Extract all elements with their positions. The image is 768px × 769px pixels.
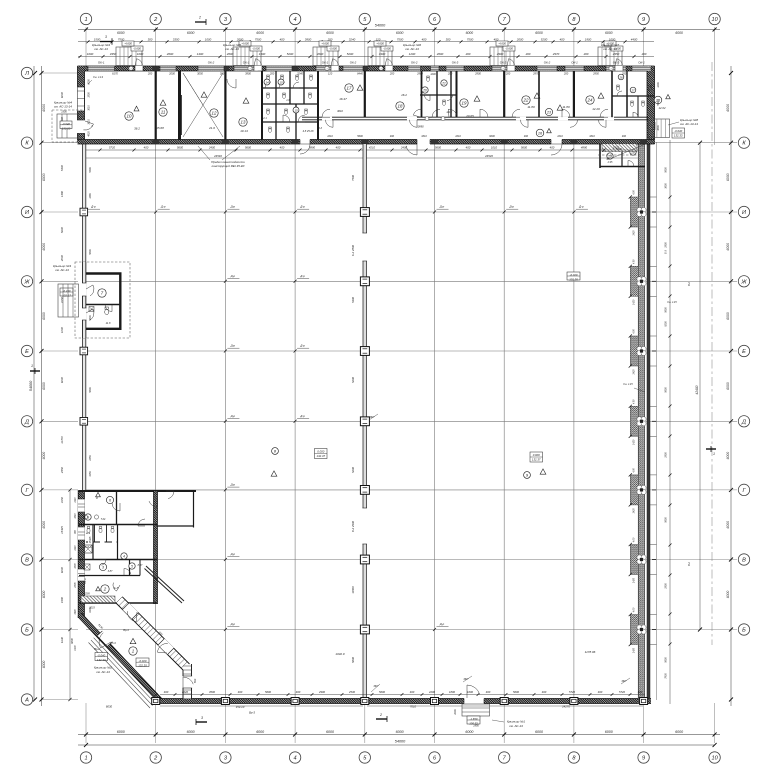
svg-text:Б-2: Б-2	[351, 251, 355, 256]
svg-text:15425: 15425	[89, 536, 92, 543]
svg-text:200: 200	[269, 72, 275, 76]
svg-text:400: 400	[486, 690, 491, 694]
svg-text:ОК-1: ОК-1	[243, 60, 250, 64]
svg-text:5600: 5600	[60, 226, 64, 233]
svg-text:2.95: 2.95	[607, 161, 613, 164]
svg-text:6000: 6000	[726, 452, 730, 460]
svg-text:1000: 1000	[60, 326, 64, 333]
svg-text:3150: 3150	[60, 496, 64, 503]
svg-text:6000: 6000	[465, 730, 473, 734]
svg-text:2450: 2450	[60, 466, 64, 474]
svg-text:4.00: 4.00	[633, 399, 636, 404]
svg-text:1990: 1990	[60, 596, 64, 603]
svg-text:ОК-1: ОК-1	[571, 60, 578, 64]
svg-text:5600: 5600	[177, 145, 184, 149]
svg-text:ОК-3: ОК-3	[452, 60, 459, 64]
svg-text:1480: 1480	[60, 190, 64, 197]
svg-text:1000: 1000	[137, 52, 144, 56]
svg-text:-0.040: -0.040	[674, 129, 682, 133]
svg-text:5: 5	[131, 565, 133, 569]
svg-text:4890: 4890	[581, 145, 588, 149]
svg-text:см. АС-13: см. АС-13	[509, 724, 523, 728]
svg-text:132.37: 132.37	[532, 458, 541, 462]
svg-text:6000: 6000	[187, 31, 195, 35]
svg-text:2000: 2000	[60, 254, 64, 262]
svg-text:1: 1	[31, 364, 33, 368]
svg-text:-4.600: -4.600	[498, 42, 506, 46]
svg-text:2900: 2900	[496, 52, 504, 56]
svg-text:2295: 2295	[83, 592, 90, 595]
svg-text:2000: 2000	[168, 72, 175, 76]
svg-text:5720: 5720	[109, 145, 116, 149]
svg-text:Сн. п.13: Сн. п.13	[93, 75, 103, 79]
svg-text:1000: 1000	[87, 52, 94, 56]
svg-text:-4.600: -4.600	[321, 42, 329, 46]
svg-text:22: 22	[523, 98, 529, 103]
svg-text:2950: 2950	[592, 72, 599, 76]
svg-text:3350: 3350	[173, 37, 180, 41]
svg-text:Д-р: Д-р	[508, 205, 514, 209]
svg-text:-0.600: -0.600	[329, 47, 337, 51]
svg-text:6000: 6000	[117, 730, 125, 734]
svg-text:Д-р: Д-р	[160, 205, 166, 209]
svg-text:1010: 1010	[88, 119, 91, 125]
svg-text:А: А	[24, 698, 29, 704]
svg-text:см. АС-13: см. АС-13	[225, 47, 239, 51]
svg-text:360°: 360°	[463, 678, 468, 681]
svg-text:10: 10	[711, 756, 718, 762]
svg-text:Вр-2: Вр-2	[94, 647, 100, 651]
svg-text:9: 9	[642, 756, 645, 762]
svg-text:5600: 5600	[357, 135, 363, 138]
svg-text:11.89: 11.89	[562, 105, 570, 109]
svg-text:10: 10	[127, 114, 132, 119]
svg-text:-4.600: -4.600	[241, 42, 249, 46]
svg-text:2900: 2900	[351, 521, 355, 528]
svg-text:ОК-2: ОК-2	[208, 60, 215, 64]
svg-text:2990: 2990	[318, 690, 325, 694]
svg-text:см. АС-13: см. АС-13	[405, 47, 419, 51]
svg-text:5200: 5200	[351, 377, 355, 383]
svg-text:4.00: 4.00	[633, 259, 636, 264]
svg-text:1200: 1200	[430, 73, 436, 76]
svg-text:54000: 54000	[375, 23, 386, 27]
svg-text:300: 300	[148, 37, 153, 41]
svg-text:6000: 6000	[42, 661, 46, 669]
svg-text:27: 27	[630, 89, 635, 93]
svg-text:3900: 3900	[305, 37, 312, 41]
svg-text:6130: 6130	[60, 636, 64, 643]
svg-text:В-3: В-3	[318, 127, 323, 130]
svg-text:200: 200	[147, 72, 153, 76]
svg-text:И: И	[25, 210, 29, 216]
svg-text:1420: 1420	[633, 508, 636, 514]
svg-text:6000: 6000	[256, 31, 264, 35]
svg-text:-4.600: -4.600	[376, 42, 384, 46]
svg-text:2.1: 2.1	[262, 117, 267, 120]
svg-text:1: 1	[84, 17, 87, 23]
svg-text:6000: 6000	[726, 104, 730, 112]
svg-text:Д-р: Д-р	[230, 483, 236, 487]
svg-text:11800: 11800	[351, 586, 355, 594]
svg-text:15.68: 15.68	[156, 126, 164, 130]
svg-text:Д-р: Д-р	[90, 205, 96, 209]
svg-text:Д-р: Д-р	[230, 205, 236, 209]
svg-text:6000: 6000	[726, 243, 730, 251]
svg-text:5200: 5200	[541, 37, 548, 41]
svg-text:Д-р: Д-р	[230, 344, 236, 348]
svg-text:5600: 5600	[265, 690, 271, 694]
svg-text:6000: 6000	[42, 382, 46, 390]
svg-text:см. АС-13: см. АС-13	[94, 47, 108, 51]
svg-text:2020: 2020	[181, 690, 188, 694]
svg-text:-0.600: -0.600	[252, 47, 260, 51]
svg-text:6000: 6000	[535, 31, 543, 35]
svg-text:7.04: 7.04	[101, 518, 106, 521]
svg-text:В-2: В-2	[688, 281, 691, 285]
svg-text:5600: 5600	[89, 315, 92, 321]
svg-text:6000: 6000	[466, 31, 474, 35]
svg-text:2600: 2600	[226, 52, 234, 56]
svg-text:-0.020: -0.020	[570, 273, 578, 277]
svg-text:конструкций REI 45-К0: конструкций REI 45-К0	[212, 164, 245, 168]
svg-text:154.10: 154.10	[236, 705, 245, 709]
svg-text:400: 400	[542, 690, 547, 694]
svg-text:3150: 3150	[89, 471, 92, 477]
svg-text:400: 400	[296, 690, 301, 694]
svg-text:Д-р: Д-р	[299, 274, 305, 278]
svg-text:ОК-3: ОК-3	[500, 60, 507, 64]
svg-text:30°: 30°	[606, 158, 610, 161]
svg-text:4.00: 4.00	[633, 607, 636, 612]
svg-text:2900: 2900	[474, 72, 481, 76]
svg-text:2900: 2900	[665, 242, 668, 249]
svg-text:-0.040: -0.040	[62, 122, 70, 126]
svg-text:1900: 1900	[259, 52, 266, 56]
svg-text:1: 1	[713, 452, 715, 456]
svg-text:21: 21	[441, 82, 446, 86]
svg-text:400: 400	[336, 145, 341, 149]
svg-text:2970: 2970	[532, 72, 539, 76]
svg-text:4.00: 4.00	[633, 537, 636, 542]
svg-text:200: 200	[525, 52, 531, 56]
svg-text:400: 400	[238, 690, 243, 694]
svg-text:4.8 25.28: 4.8 25.28	[303, 129, 314, 133]
svg-text:5600: 5600	[351, 657, 355, 663]
svg-text:5600: 5600	[89, 387, 92, 393]
svg-text:400: 400	[280, 37, 285, 41]
svg-text:2200: 2200	[428, 690, 435, 694]
svg-text:4400: 4400	[631, 37, 638, 41]
svg-text:5600: 5600	[521, 145, 528, 149]
svg-text:16.47: 16.47	[339, 97, 347, 101]
svg-text:17: 17	[347, 86, 352, 91]
svg-text:6000: 6000	[256, 730, 264, 734]
svg-text:7500: 7500	[467, 37, 474, 41]
svg-text:см. АС-13-14: см. АС-13-14	[680, 122, 698, 126]
svg-text:16.2: 16.2	[401, 93, 407, 97]
svg-text:6030: 6030	[106, 705, 113, 709]
svg-text:1200: 1200	[657, 82, 660, 88]
svg-text:Д-р: Д-р	[578, 205, 584, 209]
svg-text:Д-р: Д-р	[230, 552, 236, 556]
svg-text:1000: 1000	[75, 563, 77, 569]
svg-text:2600: 2600	[166, 52, 174, 56]
svg-text:1500: 1500	[88, 92, 91, 98]
svg-text:4.00: 4.00	[633, 329, 636, 334]
svg-text:2530: 2530	[348, 690, 355, 694]
svg-text:2970: 2970	[552, 52, 560, 56]
svg-text:2035: 2035	[75, 582, 77, 589]
svg-text:6000: 6000	[726, 173, 730, 181]
svg-text:1010: 1010	[455, 135, 461, 138]
svg-text:20: 20	[422, 89, 427, 93]
svg-text:11.89: 11.89	[527, 105, 535, 109]
svg-text:9200: 9200	[665, 321, 668, 327]
svg-text:6000: 6000	[326, 31, 334, 35]
svg-text:1010: 1010	[491, 145, 498, 149]
svg-text:20.05: 20.05	[465, 114, 474, 118]
svg-text:10990: 10990	[416, 125, 424, 129]
svg-text:6000: 6000	[605, 31, 613, 35]
svg-text:5600: 5600	[665, 307, 668, 313]
svg-text:5600: 5600	[89, 249, 92, 255]
svg-text:0.000: 0.000	[317, 450, 324, 454]
svg-text:Д-р: Д-р	[230, 622, 236, 626]
svg-text:6000: 6000	[326, 730, 334, 734]
svg-text:24520: 24520	[484, 154, 493, 158]
svg-text:1480: 1480	[89, 193, 92, 199]
svg-text:1000: 1000	[205, 37, 212, 41]
svg-text:12.26: 12.26	[592, 107, 600, 111]
svg-text:Д-р: Д-р	[299, 344, 305, 348]
svg-text:1.6: 1.6	[286, 99, 290, 102]
svg-text:800: 800	[193, 678, 197, 683]
svg-text:13: 13	[241, 120, 246, 125]
svg-text:7010: 7010	[410, 705, 417, 709]
svg-text:Б: Б	[742, 628, 746, 634]
svg-text:3: 3	[102, 566, 104, 570]
svg-text:2950: 2950	[612, 52, 620, 56]
svg-text:Ж: Ж	[740, 279, 747, 285]
svg-text:2: 2	[103, 587, 107, 592]
svg-text:1200: 1200	[409, 52, 416, 56]
svg-text:6000: 6000	[60, 91, 64, 98]
svg-text:3240: 3240	[349, 37, 356, 41]
svg-text:14: 14	[265, 81, 269, 85]
svg-text:54000: 54000	[29, 380, 33, 391]
svg-text:6000: 6000	[42, 104, 46, 112]
svg-text:7500: 7500	[351, 175, 355, 181]
svg-text:2110: 2110	[75, 545, 77, 552]
svg-text:11.8: 11.8	[106, 321, 111, 325]
svg-text:-0.040: -0.040	[97, 654, 105, 658]
svg-text:3: 3	[201, 716, 203, 720]
svg-text:400: 400	[410, 690, 415, 694]
svg-text:14270: 14270	[562, 705, 570, 709]
svg-text:В-2: В-2	[688, 561, 691, 565]
svg-text:5300: 5300	[351, 297, 355, 303]
svg-text:6000: 6000	[42, 521, 46, 529]
svg-text:9000: 9000	[489, 135, 495, 138]
svg-text:Св.10: Св.10	[85, 577, 87, 584]
svg-text:4: 4	[123, 555, 125, 559]
svg-text:5600: 5600	[665, 517, 668, 523]
svg-text:24: 24	[587, 98, 593, 103]
svg-text:1420: 1420	[633, 647, 636, 653]
svg-text:Ж: Ж	[23, 279, 30, 285]
svg-text:6000: 6000	[726, 312, 730, 320]
svg-text:3010: 3010	[337, 109, 343, 113]
svg-text:Д-р: Д-р	[230, 274, 236, 278]
svg-text:В: В	[25, 558, 29, 564]
svg-text:1800: 1800	[449, 690, 455, 694]
svg-text:360°: 360°	[621, 680, 626, 683]
svg-text:1600: 1600	[467, 690, 473, 694]
svg-text:2: 2	[379, 713, 382, 717]
svg-text:6000: 6000	[726, 521, 730, 529]
svg-text:0.000: 0.000	[533, 453, 540, 457]
svg-text:300: 300	[446, 37, 451, 41]
svg-text:42400: 42400	[695, 385, 699, 394]
svg-text:5720: 5720	[619, 690, 625, 694]
svg-text:6000: 6000	[396, 730, 404, 734]
svg-text:400: 400	[164, 690, 169, 694]
svg-text:24540: 24540	[213, 154, 222, 158]
svg-text:1900: 1900	[585, 37, 592, 41]
svg-text:2: 2	[198, 16, 201, 20]
svg-text:1032.9: 1032.9	[335, 652, 345, 656]
svg-text:400: 400	[638, 690, 643, 694]
svg-text:18: 18	[398, 104, 403, 109]
svg-text:5600: 5600	[435, 145, 442, 149]
svg-text:3240: 3240	[297, 72, 303, 76]
svg-text:1500: 1500	[94, 37, 101, 41]
svg-text:5600: 5600	[665, 657, 668, 663]
svg-text:Б: Б	[25, 628, 29, 634]
svg-text:400: 400	[622, 135, 627, 138]
svg-text:1: 1	[84, 756, 87, 762]
svg-text:7500: 7500	[255, 37, 262, 41]
svg-text:3500: 3500	[209, 690, 215, 694]
svg-text:3: 3	[105, 35, 107, 39]
svg-text:5200: 5200	[347, 52, 354, 56]
svg-text:-0.600: -0.600	[505, 47, 513, 51]
svg-text:Е: Е	[25, 349, 29, 355]
svg-text:12: 12	[212, 111, 217, 116]
svg-text:6000: 6000	[726, 382, 730, 390]
svg-text:ОК-1: ОК-1	[98, 60, 105, 64]
svg-text:ОК-1: ОК-1	[638, 60, 645, 64]
svg-text:6130: 6130	[75, 645, 77, 651]
svg-text:5400: 5400	[89, 167, 92, 173]
svg-text:Е: Е	[742, 349, 746, 355]
svg-text:200: 200	[563, 72, 569, 76]
svg-text:5560: 5560	[657, 100, 660, 106]
svg-text:6000: 6000	[60, 566, 64, 573]
svg-text:Д-р: Д-р	[439, 622, 445, 626]
svg-text:4310: 4310	[589, 135, 595, 138]
svg-text:В: В	[742, 558, 746, 564]
svg-text:6000: 6000	[675, 730, 683, 734]
svg-text:4620: 4620	[88, 131, 91, 137]
svg-text:6440: 6440	[357, 72, 363, 76]
svg-text:200: 200	[621, 72, 627, 76]
svg-text:1010: 1010	[75, 513, 77, 519]
svg-text:6000: 6000	[42, 173, 46, 181]
svg-text:И: И	[742, 210, 746, 216]
svg-text:11700: 11700	[60, 436, 64, 444]
svg-text:400: 400	[280, 145, 285, 149]
svg-text:1420: 1420	[633, 369, 636, 375]
svg-text:Л: Л	[24, 71, 29, 77]
svg-text:6000: 6000	[42, 591, 46, 599]
svg-text:2600: 2600	[436, 52, 444, 56]
svg-text:132.35: 132.35	[569, 278, 578, 282]
svg-text:2000: 2000	[516, 37, 524, 41]
svg-text:Вр-4: Вр-4	[123, 628, 129, 632]
svg-text:200: 200	[447, 72, 453, 76]
svg-text:5400: 5400	[60, 164, 64, 171]
svg-text:3600: 3600	[657, 125, 660, 131]
svg-text:ОК-2: ОК-2	[544, 60, 551, 64]
svg-text:6000: 6000	[675, 31, 683, 35]
svg-text:400: 400	[550, 145, 555, 149]
svg-text:400: 400	[422, 37, 427, 41]
svg-text:6000: 6000	[605, 730, 613, 734]
svg-text:132.33: 132.33	[62, 127, 71, 131]
svg-text:200: 200	[583, 52, 589, 56]
svg-text:1210: 1210	[446, 111, 452, 114]
svg-text:1420: 1420	[633, 299, 636, 305]
svg-text:132.33: 132.33	[674, 134, 683, 138]
svg-text:3900: 3900	[245, 72, 251, 76]
svg-text:1010: 1010	[613, 145, 620, 149]
svg-text:ОК-2: ОК-2	[411, 60, 418, 64]
svg-text:19: 19	[462, 101, 467, 106]
svg-text:Д: Д	[24, 419, 29, 425]
svg-text:1990: 1990	[75, 609, 77, 615]
svg-text:21.6: 21.6	[208, 126, 215, 130]
svg-text:5200: 5200	[287, 52, 294, 56]
svg-text:6000: 6000	[726, 591, 730, 599]
svg-text:200: 200	[505, 72, 511, 76]
svg-text:400: 400	[560, 37, 565, 41]
svg-text:23: 23	[546, 111, 551, 115]
svg-text:360°: 360°	[369, 416, 374, 419]
svg-text:300: 300	[220, 72, 225, 76]
svg-text:400: 400	[466, 145, 471, 149]
svg-text:2900: 2900	[665, 452, 668, 459]
svg-text:400: 400	[144, 145, 149, 149]
svg-text:26: 26	[618, 76, 623, 80]
svg-text:5600: 5600	[379, 690, 385, 694]
svg-text:Д-р: Д-р	[439, 205, 445, 209]
svg-text:5600: 5600	[513, 690, 519, 694]
svg-text:54000: 54000	[395, 740, 406, 744]
svg-text:-0.600: -0.600	[133, 47, 141, 51]
svg-text:132.35: 132.35	[138, 664, 147, 668]
svg-text:В-2: В-2	[351, 527, 355, 532]
svg-text:Сн. п.15: Сн. п.15	[623, 383, 633, 386]
svg-text:Д-р: Д-р	[230, 414, 236, 418]
svg-text:2450: 2450	[89, 455, 92, 462]
svg-text:Д: Д	[741, 419, 746, 425]
svg-text:4.00: 4.00	[633, 190, 636, 195]
svg-text:Д-р: Д-р	[299, 205, 305, 209]
svg-text:400: 400	[524, 135, 529, 138]
svg-text:6: 6	[109, 499, 111, 503]
